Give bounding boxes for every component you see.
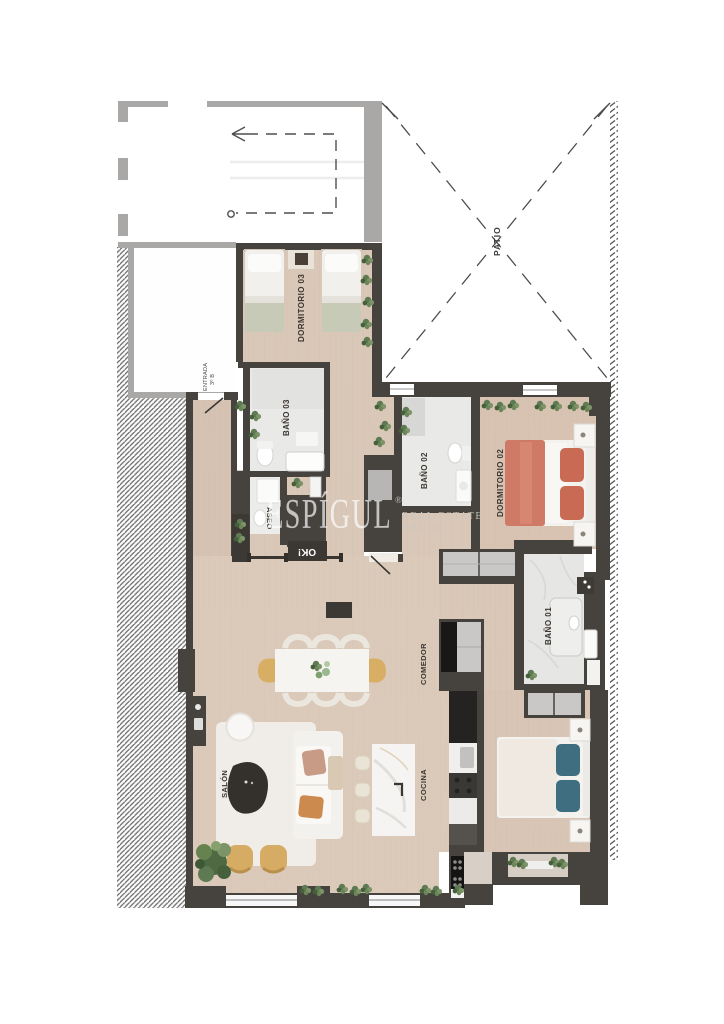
svg-text:COCINA: COCINA bbox=[419, 769, 428, 801]
svg-text:REAL ESTATE: REAL ESTATE bbox=[402, 511, 483, 522]
svg-text:OK!: OK! bbox=[298, 546, 316, 557]
svg-text:ESPÍGUL: ESPÍGUL bbox=[266, 491, 392, 538]
svg-text:BAÑO 02: BAÑO 02 bbox=[420, 452, 429, 489]
svg-text:BAÑO 01: BAÑO 01 bbox=[544, 607, 553, 645]
svg-text:GROUP: GROUP bbox=[402, 522, 444, 533]
svg-text:BAÑO 03: BAÑO 03 bbox=[282, 399, 291, 436]
svg-text:PATIO: PATIO bbox=[492, 226, 502, 256]
svg-text:DORMITORIO 03: DORMITORIO 03 bbox=[297, 274, 306, 342]
svg-text:DORMITORIO 02: DORMITORIO 02 bbox=[496, 449, 505, 517]
svg-text:ENTRADA: ENTRADA bbox=[203, 363, 209, 391]
svg-text:®: ® bbox=[395, 495, 402, 505]
svg-text:SALÓN: SALÓN bbox=[220, 770, 229, 798]
svg-text:3º B: 3º B bbox=[209, 374, 216, 385]
svg-text:COMEDOR: COMEDOR bbox=[419, 643, 428, 685]
